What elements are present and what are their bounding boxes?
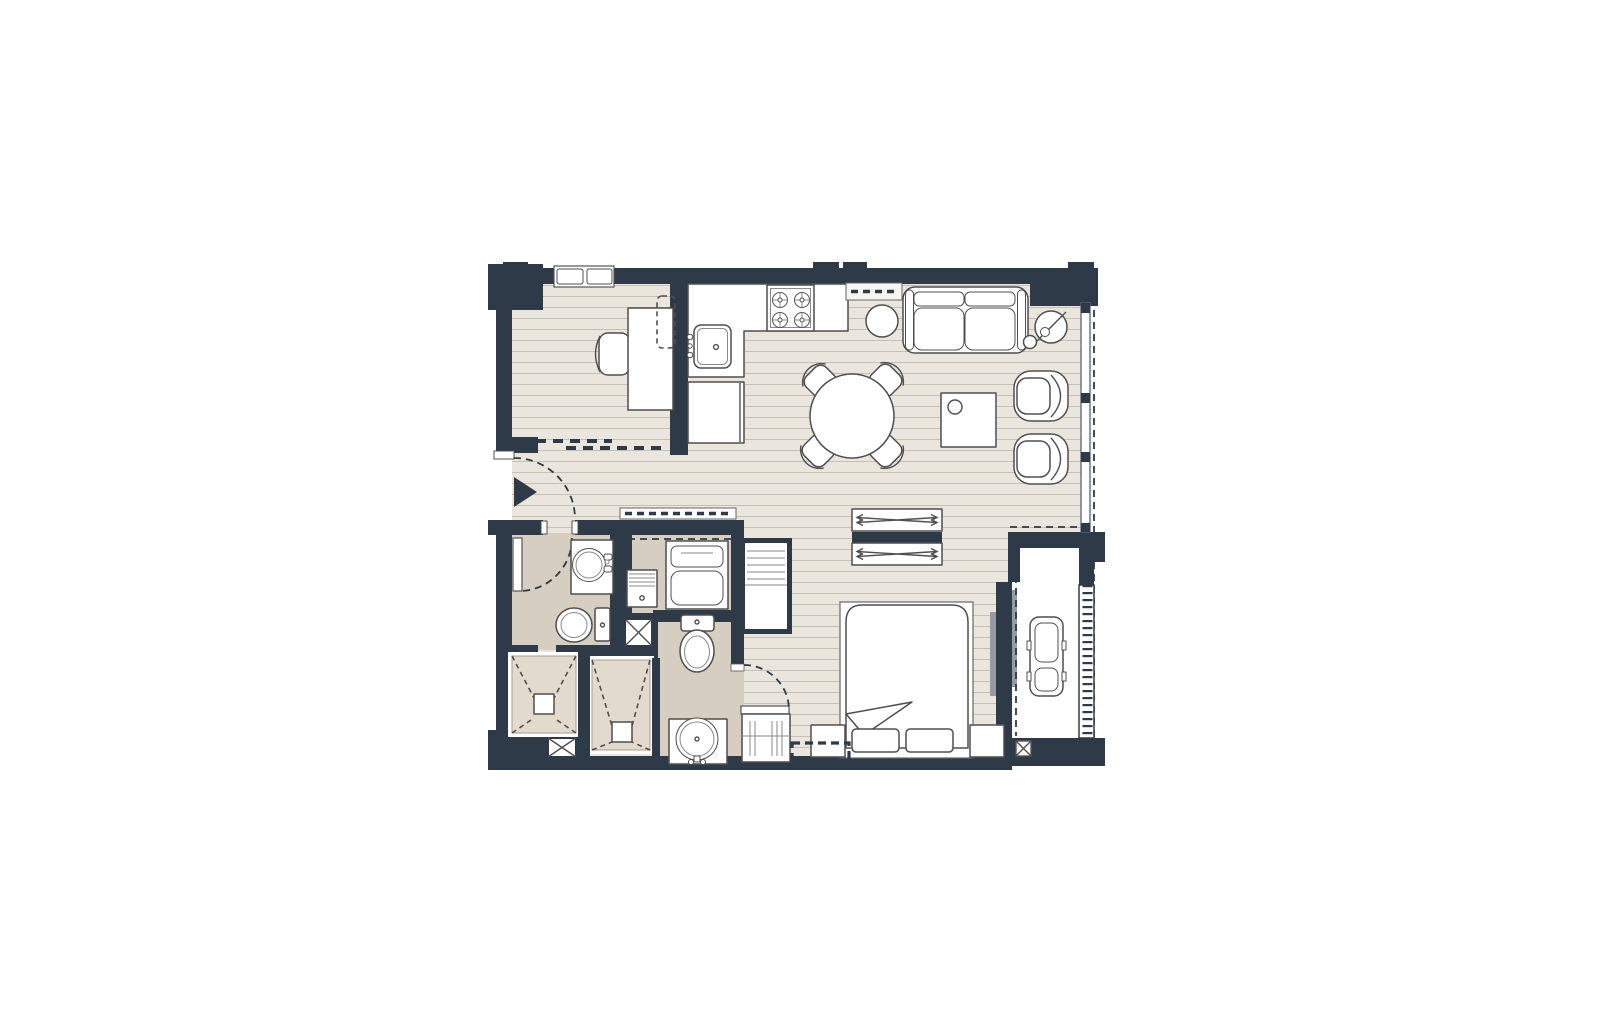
lounge-chair (1027, 617, 1066, 696)
armchair-2 (1014, 434, 1068, 484)
sofa (903, 287, 1028, 353)
sliding-wardrobe-bedroom (852, 543, 942, 565)
window-wall-right (1081, 303, 1090, 532)
nightstand-right (970, 725, 1004, 757)
louver-screen (1079, 585, 1094, 738)
shelving-unit (740, 538, 792, 634)
duct-x-box-2 (548, 738, 576, 757)
armchair-1 (1014, 371, 1068, 421)
coffee-table (941, 393, 996, 447)
laundry-cabinet (627, 570, 657, 607)
pillow (852, 729, 899, 752)
ensuite-toilet (680, 615, 714, 672)
den-window (554, 266, 614, 287)
duct-x-box-1 (625, 619, 652, 646)
kitchen-sink (687, 325, 731, 368)
pillow (906, 729, 953, 752)
ensuite-shower (578, 650, 660, 756)
balcony-drain-box (1016, 741, 1031, 756)
sliding-wardrobe-living (852, 509, 942, 531)
nightstand-left (811, 725, 845, 757)
dresser (742, 714, 790, 762)
floor-plan-svg (0, 0, 1600, 1035)
ensuite-washbasin (669, 718, 727, 765)
bathroom-washbasin (571, 540, 613, 594)
desk-chair (596, 333, 631, 375)
desk (628, 308, 673, 410)
upper-cabinet-dashed (846, 283, 902, 300)
bathroom-shower (508, 652, 580, 737)
floor-plan-canvas (0, 0, 1600, 1035)
double-bed (840, 602, 973, 758)
refrigerator (688, 382, 744, 443)
dining-table (810, 374, 894, 458)
gas-stove (767, 285, 814, 331)
washing-machine (666, 541, 728, 609)
side-table (866, 305, 898, 337)
shower-drain (534, 694, 554, 714)
bathroom-toilet (556, 608, 610, 642)
shower-drain (612, 722, 632, 742)
wardrobe-divider-wall (852, 532, 942, 543)
